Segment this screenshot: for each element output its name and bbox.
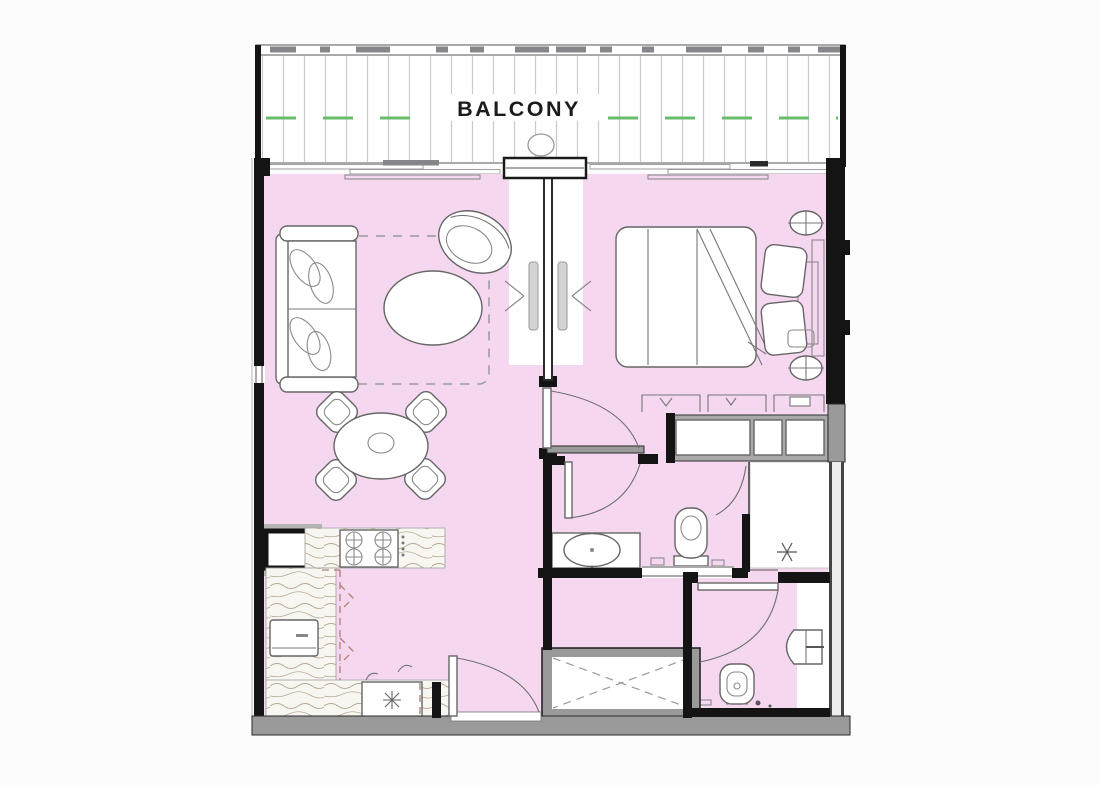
partition-panel-right xyxy=(558,262,567,330)
floor-plan: BALCONY xyxy=(0,0,1100,785)
right-wall-lower xyxy=(829,462,844,718)
balcony-left-wall xyxy=(255,45,261,167)
right-exterior-wall xyxy=(826,158,845,404)
wardrobe-end-wall xyxy=(666,413,675,463)
washbasin xyxy=(787,630,825,664)
bottom-exterior-wall xyxy=(252,716,850,735)
floor-plan-page: BALCONY xyxy=(0,0,1100,785)
powder-room-bottom-wall xyxy=(683,708,830,717)
entry-nib-wall xyxy=(432,682,441,718)
left-wall-window xyxy=(253,366,265,383)
shaft xyxy=(542,648,700,718)
cooktop xyxy=(340,530,405,567)
wardrobe-door-2 xyxy=(754,420,782,455)
wardrobe-door-3 xyxy=(786,420,824,455)
balcony-circle-marker xyxy=(528,134,554,156)
balcony: BALCONY xyxy=(255,45,846,175)
left-exterior-wall xyxy=(254,158,264,720)
bathroom-bottom-wall xyxy=(538,568,642,578)
coffee-table xyxy=(384,271,482,345)
partition-wall xyxy=(544,174,552,380)
shower-wall xyxy=(742,514,750,572)
kitchen-counter-bottom xyxy=(266,680,452,718)
partition-panel-left xyxy=(529,262,538,330)
balcony-railing xyxy=(256,45,845,55)
balcony-label: BALCONY xyxy=(457,97,581,121)
corridor-wall xyxy=(547,446,644,453)
right-wall-mid xyxy=(828,404,845,462)
sofa xyxy=(276,226,358,392)
balcony-right-wall xyxy=(840,45,846,167)
spine-wall xyxy=(543,456,552,650)
dining-table xyxy=(334,413,428,479)
kitchen-appliance xyxy=(270,620,318,656)
wardrobe-door-1 xyxy=(676,420,750,455)
bed xyxy=(616,227,824,367)
powder-room-left-wall xyxy=(683,574,692,718)
